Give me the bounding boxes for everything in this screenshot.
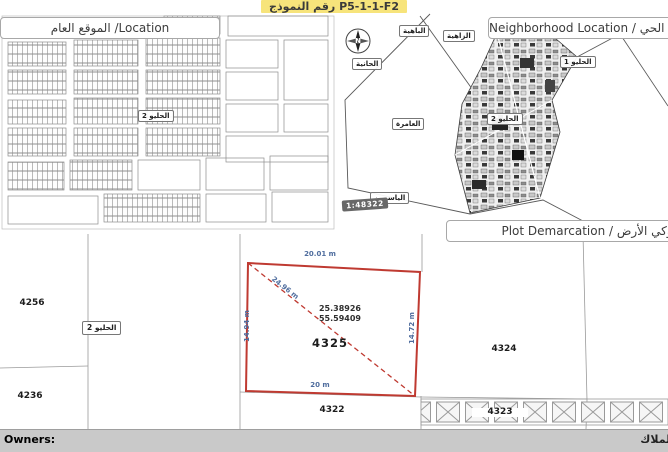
owners-label-en: Owners: bbox=[4, 433, 55, 446]
neighbor-plot-4236: 4236 bbox=[6, 392, 54, 401]
measure-top-edge: 20.01 m bbox=[280, 250, 360, 258]
district-label-zahia: الزاهية bbox=[443, 30, 475, 42]
form-number-highlight: رقم النموذج P5-1-1-F2 bbox=[261, 0, 407, 13]
target-plot-longitude: 55.59409 bbox=[302, 314, 378, 324]
district-label-amra: العامرة bbox=[392, 118, 424, 130]
neighbor-plot-4256: 4256 bbox=[8, 299, 56, 308]
target-plot-number: 4325 bbox=[300, 338, 360, 350]
location-area-badge: الحليو 2 bbox=[138, 110, 174, 122]
plot-panel-title: Plot Demarcation / كروكي الأرض bbox=[446, 220, 668, 242]
location-map-drawing bbox=[2, 16, 334, 229]
district-label-helio2: الحليو 2 bbox=[487, 113, 523, 125]
plot-area-badge: الحليو 2 bbox=[82, 321, 121, 335]
cadastral-form-page: N رقم النموذج P5-1-1-F2 الموقع العام /Lo… bbox=[0, 0, 668, 452]
measure-left-edge: 14.94 m bbox=[243, 306, 251, 346]
location-panel-title: الموقع العام /Location bbox=[0, 17, 220, 39]
district-label-hania: الحانية bbox=[352, 58, 382, 70]
neighbor-plot-4322: 4322 bbox=[306, 406, 358, 415]
owners-label-ar: الملاك bbox=[640, 433, 668, 446]
measure-right-edge: 14.72 m bbox=[408, 308, 416, 348]
hatched-strip bbox=[421, 399, 668, 425]
target-plot-latitude: 25.38926 bbox=[302, 304, 378, 314]
district-label-helio1: الحليو 1 bbox=[560, 56, 596, 68]
compass-icon: N bbox=[346, 29, 370, 53]
neighbor-plot-4323: 4323 bbox=[472, 408, 528, 417]
neighbor-plot-4324: 4324 bbox=[478, 345, 530, 354]
compass-n-label: N bbox=[355, 37, 361, 45]
neighborhood-panel-title: Neighborhood Location / موقع الحي bbox=[488, 17, 668, 39]
measure-bottom-edge: 20 m bbox=[280, 381, 360, 389]
owners-footer-bar: Owners: الملاك bbox=[0, 429, 668, 452]
district-label-bahia: الباهية bbox=[399, 25, 429, 37]
form-number-header: رقم النموذج P5-1-1-F2 bbox=[0, 0, 668, 14]
